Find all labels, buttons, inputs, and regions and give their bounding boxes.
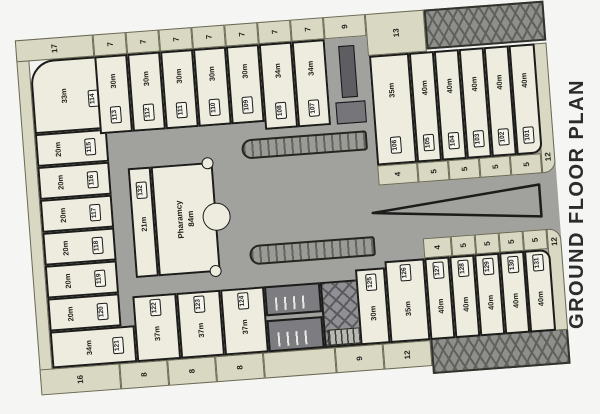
floor-plan-canvas: 17 7 7 7 7 7 7 7 9 13 16 8 8 8 9 12 4 5 … xyxy=(0,0,600,414)
inner-strip-label: 12 xyxy=(550,237,560,247)
room-area: 34m xyxy=(305,61,315,77)
sidewalk-label: 7 xyxy=(105,42,114,47)
room-number: 117 xyxy=(89,204,101,221)
room-number: 118 xyxy=(91,237,103,254)
sidewalk-label: 7 xyxy=(237,32,246,37)
room-number: 101 xyxy=(522,126,534,144)
inner-strip-seg: 4 xyxy=(377,163,418,186)
floor-plan: 17 7 7 7 7 7 7 7 9 13 16 8 8 8 9 12 4 5 … xyxy=(15,1,571,412)
room-area: 33m xyxy=(59,88,69,104)
room-area: 34m xyxy=(84,339,94,355)
sidewalk-label: 7 xyxy=(204,34,213,39)
room-area: 30m xyxy=(173,68,183,84)
room-number: 107 xyxy=(307,99,319,117)
room-area: 40m xyxy=(460,296,470,312)
room-number: 129 xyxy=(482,258,494,276)
room-area: 40m xyxy=(469,76,479,92)
inner-strip-label: 5 xyxy=(483,241,492,246)
stair-steps xyxy=(327,327,362,346)
toilet-block-upper xyxy=(264,282,322,316)
toilet-fixtures xyxy=(275,295,308,310)
room-area: 21m xyxy=(138,217,148,233)
room-number: 111 xyxy=(175,101,187,118)
page-title: GROUND FLOOR PLAN xyxy=(559,39,595,369)
toilet-block-lower xyxy=(266,316,324,352)
sidewalk-bottom-seg: 9 xyxy=(335,344,385,374)
inner-strip-label: 5 xyxy=(429,169,438,174)
sidewalk-label: 8 xyxy=(187,368,196,373)
inner-strip-seg: 5 xyxy=(448,158,480,180)
inner-strip-seg: 5 xyxy=(499,231,524,253)
room-number: 109 xyxy=(241,96,253,114)
sidewalk-bottom-seg: 12 xyxy=(383,340,433,370)
sidewalk-top-seg: 7 xyxy=(257,20,292,44)
room-area: 40m xyxy=(435,298,445,314)
room-number: 103 xyxy=(472,130,484,148)
room-area: 20m xyxy=(66,306,76,322)
inner-strip-seg: 5 xyxy=(510,153,542,175)
sidewalk-bottom-seg xyxy=(263,347,337,378)
sidewalk-top-seg: 7 xyxy=(125,30,160,54)
sidewalk-bottom-seg: 8 xyxy=(167,356,217,386)
sidewalk-bottom-seg: 8 xyxy=(215,353,265,383)
sidewalk-label: 13 xyxy=(391,28,401,38)
room-area: 34m xyxy=(272,63,282,79)
sidewalk-top-seg: 9 xyxy=(323,14,367,39)
room-115: 20m 115 xyxy=(35,129,109,167)
inner-strip-label: 5 xyxy=(531,237,540,242)
inner-strip-seg: 5 xyxy=(417,160,449,182)
sidewalk-label: 9 xyxy=(340,24,349,29)
inner-strip-seg: 5 xyxy=(479,156,511,178)
room-area: 30m xyxy=(140,71,150,87)
room-117: 20m 117 xyxy=(40,195,114,233)
room-area: 35m xyxy=(387,82,397,98)
room-123: 123 37m xyxy=(176,290,225,359)
room-area: 20m xyxy=(63,273,73,289)
room-119: 20m 119 xyxy=(45,260,119,298)
room-124: 124 37m xyxy=(220,286,269,355)
room-area: 40m xyxy=(510,293,520,309)
sidewalk-top-seg: 7 xyxy=(224,22,259,46)
sidewalk-label: 17 xyxy=(50,44,60,54)
room-area: 30m xyxy=(239,63,249,79)
sidewalk-top-seg: 7 xyxy=(290,17,325,41)
sidewalk-label: 7 xyxy=(171,37,180,42)
sidewalk-label: 12 xyxy=(403,350,413,360)
inner-strip-seg: 5 xyxy=(451,234,476,256)
room-area: 30m xyxy=(206,66,216,82)
inner-strip-label: 5 xyxy=(521,162,530,167)
inner-strip-label: 5 xyxy=(460,167,469,172)
inner-strip-seg: 5 xyxy=(475,233,500,255)
sidewalk-top-seg: 13 xyxy=(365,10,427,56)
sidewalk-top-seg: 7 xyxy=(158,27,193,51)
room-116: 20m 116 xyxy=(37,162,111,200)
room-area: 40m xyxy=(536,291,546,307)
room-area: 37m xyxy=(152,326,162,342)
room-number: 106 xyxy=(390,136,402,154)
room-number: 113 xyxy=(109,106,121,123)
room-107: 34m 107 xyxy=(292,39,331,127)
room-122: 122 37m xyxy=(132,293,181,362)
room-area: 20m xyxy=(56,174,66,190)
room-area: 40m xyxy=(419,80,429,96)
room-126: 126 35m xyxy=(384,258,430,343)
room-121: 34m 121 xyxy=(50,325,138,368)
room-number: 121 xyxy=(112,336,124,354)
sidewalk-label: 8 xyxy=(140,372,149,377)
landscape-hatch-top-right xyxy=(424,1,547,50)
sidewalk-label: 8 xyxy=(235,365,244,370)
room-area: 40m xyxy=(494,74,504,90)
room-area: 37m xyxy=(240,319,250,335)
room-area: 37m xyxy=(196,323,206,339)
room-number: 112 xyxy=(142,104,154,121)
sidewalk-top-seg: 7 xyxy=(93,32,128,56)
room-number: 130 xyxy=(507,256,519,274)
inner-strip-label: 4 xyxy=(393,171,402,176)
room-area: 30m xyxy=(368,306,378,322)
room-number: 126 xyxy=(399,264,411,282)
room-area: 40m xyxy=(485,294,495,310)
room-number: 128 xyxy=(457,260,469,278)
room-area: 40m xyxy=(519,72,529,88)
room-number: 105 xyxy=(422,134,434,152)
sidewalk-label: 16 xyxy=(76,375,86,385)
room-120: 20m 120 xyxy=(47,293,121,331)
room-area: 35m xyxy=(403,301,413,317)
room-number: 123 xyxy=(193,296,205,314)
inner-strip-label: 5 xyxy=(459,243,468,248)
room-number: 125 xyxy=(365,273,377,291)
room-area: 20m xyxy=(53,141,63,157)
room-area: 20m xyxy=(58,207,68,223)
room-area: 30m xyxy=(108,73,118,89)
room-number: 122 xyxy=(149,299,161,317)
inner-strip-label: 5 xyxy=(507,239,516,244)
room-number: 124 xyxy=(237,292,249,310)
room-area: 40m xyxy=(444,78,454,94)
room-area: 20m xyxy=(61,240,71,256)
sidewalk-label: 7 xyxy=(138,39,147,44)
room-number: 120 xyxy=(96,302,108,320)
escalator-landing xyxy=(335,100,367,124)
room-number: 127 xyxy=(432,261,444,279)
room-number: 102 xyxy=(497,128,509,146)
room-number: 131 xyxy=(532,254,544,272)
inner-strip-label: 5 xyxy=(490,164,499,169)
inner-strip-seg: 5 xyxy=(523,229,548,251)
sidewalk-top-seg: 7 xyxy=(191,25,226,49)
inner-strip-label: 12 xyxy=(543,152,553,162)
room-number: 119 xyxy=(94,270,106,287)
room-number: 104 xyxy=(447,132,459,150)
inner-strip-seg: 4 xyxy=(423,236,452,258)
sidewalk-label: 9 xyxy=(355,356,364,361)
room-118: 20m 118 xyxy=(42,227,116,265)
sidewalk-label: 7 xyxy=(270,29,279,34)
sidewalk-bottom-seg: 8 xyxy=(119,360,169,390)
room-number: 110 xyxy=(208,99,220,116)
room-number: 108 xyxy=(274,101,286,119)
inner-strip-label: 4 xyxy=(433,245,442,250)
sidewalk-label: 7 xyxy=(303,27,312,32)
room-number: 115 xyxy=(84,138,96,155)
room-number: 116 xyxy=(86,171,98,188)
room-number: 132 xyxy=(135,182,147,200)
toilet-fixtures xyxy=(277,330,310,346)
